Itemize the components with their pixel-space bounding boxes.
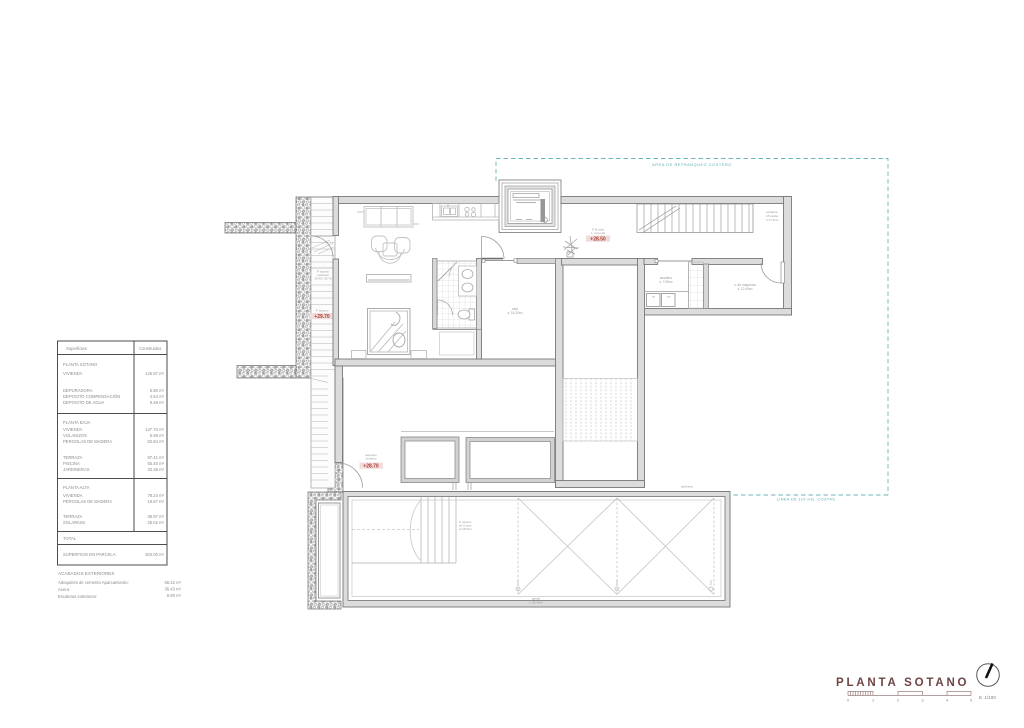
svg-text:4: 4 (946, 699, 948, 703)
svg-text:36.43 m²: 36.43 m² (164, 587, 181, 592)
svg-text:TERRAZA: TERRAZA (63, 514, 83, 519)
svg-text:5.98 m²: 5.98 m² (150, 433, 165, 438)
svg-text:LINEA DE 110 mts. COSTAS: LINEA DE 110 mts. COSTAS (777, 498, 835, 502)
svg-text:VIVIENDA: VIVIENDA (63, 493, 83, 498)
svg-text:PLANTA BAJA: PLANTA BAJA (63, 420, 91, 425)
svg-text:4.54 m²: 4.54 m² (150, 394, 165, 399)
svg-text:Acera:: Acera: (58, 587, 70, 592)
svg-text:VOLADIZOS: VOLADIZOS (63, 433, 87, 438)
svg-text:TOTAL: TOTAL (63, 536, 77, 541)
svg-text:DEPOSITO COMPENSACIÓN: DEPOSITO COMPENSACIÓN (63, 394, 120, 399)
svg-text:s. 18.20m²: s. 18.20m² (507, 311, 522, 315)
svg-text:Construidos: Construidos (139, 346, 161, 351)
svg-text:JARDINERAS: JARDINERAS (63, 467, 90, 472)
svg-text:h:17.5cm: h:17.5cm (766, 218, 779, 222)
svg-text:125.97 m²: 125.97 m² (145, 371, 164, 376)
svg-text:DEPOSITO DE AGUA: DEPOSITO DE AGUA (63, 400, 105, 405)
svg-text:PLANTA ALTA: PLANTA ALTA (63, 485, 90, 490)
svg-text:0: 0 (847, 699, 849, 703)
svg-text:5: 5 (970, 699, 972, 703)
svg-text:55.40 m²: 55.40 m² (147, 461, 164, 466)
svg-text:p=18.5cm: p=18.5cm (459, 527, 472, 531)
svg-text:29.45 / 29.70: 29.45 / 29.70 (315, 277, 332, 281)
svg-text:Escaleras exteriores:: Escaleras exteriores: (58, 594, 97, 599)
svg-text:DEPURADORA: DEPURADORA (63, 388, 93, 393)
svg-text:Adoquines de cemento Aparcamie: Adoquines de cemento Aparcamiento: (58, 580, 129, 585)
svg-text:97.41 m²: 97.41 m² (147, 455, 164, 460)
svg-text:VIVIENDA: VIVIENDA (63, 427, 83, 432)
svg-text:PISCINA: PISCINA (63, 461, 80, 466)
svg-text:SUPERFICIE EN PARCELA:: SUPERFICIE EN PARCELA: (63, 552, 117, 557)
svg-text:2: 2 (897, 699, 899, 703)
svg-text:PLANTA SOTANO: PLANTA SOTANO (836, 677, 969, 689)
svg-text:VIVIENDA: VIVIENDA (63, 371, 83, 376)
svg-text:3: 3 (921, 699, 923, 703)
svg-text:36.97 m²: 36.97 m² (147, 514, 164, 519)
svg-text:E. 1/100: E. 1/100 (979, 695, 996, 700)
svg-text:PLANTA SOTANO: PLANTA SOTANO (63, 362, 98, 367)
svg-text:+28.50: +28.50 (590, 237, 606, 243)
svg-text:ACABADOS EXTERIORES: ACABADOS EXTERIORES (58, 571, 114, 576)
svg-text:1: 1 (872, 699, 874, 703)
svg-text:5.80 m²: 5.80 m² (150, 388, 165, 393)
svg-text:SOLARIUM: SOLARIUM (63, 520, 85, 525)
svg-text:s. 58.40m²: s. 58.40m² (529, 601, 543, 605)
svg-text:303.00 m²: 303.00 m² (145, 552, 164, 557)
svg-text:+29.70: +29.70 (314, 314, 330, 320)
svg-text:9.90 m²: 9.90 m² (167, 593, 182, 598)
svg-text:+28.70: +28.70 (363, 464, 379, 470)
svg-text:62.84 m²: 62.84 m² (147, 439, 164, 444)
svg-text:19.67 m²: 19.67 m² (147, 499, 164, 504)
svg-text:Superficies: Superficies (66, 346, 87, 351)
svg-text:s. vivienda: s. vivienda (591, 231, 606, 235)
svg-text:s. 7.65m²: s. 7.65m² (659, 280, 672, 284)
svg-text:TERRAZA: TERRAZA (63, 455, 83, 460)
svg-text:PERGOLAS DE MADERA: PERGOLAS DE MADERA (63, 439, 112, 444)
svg-text:P. acceso: P. acceso (316, 309, 329, 313)
svg-text:78.24 m²: 78.24 m² (147, 493, 164, 498)
svg-text:bombeo: bombeo (366, 457, 377, 461)
svg-text:25.02 m²: 25.02 m² (147, 520, 164, 525)
svg-text:58.42 m²: 58.42 m² (164, 580, 181, 585)
svg-text:AREA DE RETRANQUEO COSTERO: AREA DE RETRANQUEO COSTERO (652, 163, 732, 167)
svg-text:s. 12.40m²: s. 12.40m² (737, 287, 752, 291)
svg-text:137.70 m²: 137.70 m² (145, 427, 164, 432)
svg-text:9.48 m²: 9.48 m² (150, 400, 165, 405)
svg-text:jardinera: jardinera (680, 485, 693, 489)
svg-text:PERGOLAS DE MADERA: PERGOLAS DE MADERA (63, 499, 112, 504)
svg-text:33.35 m²: 33.35 m² (147, 467, 164, 472)
